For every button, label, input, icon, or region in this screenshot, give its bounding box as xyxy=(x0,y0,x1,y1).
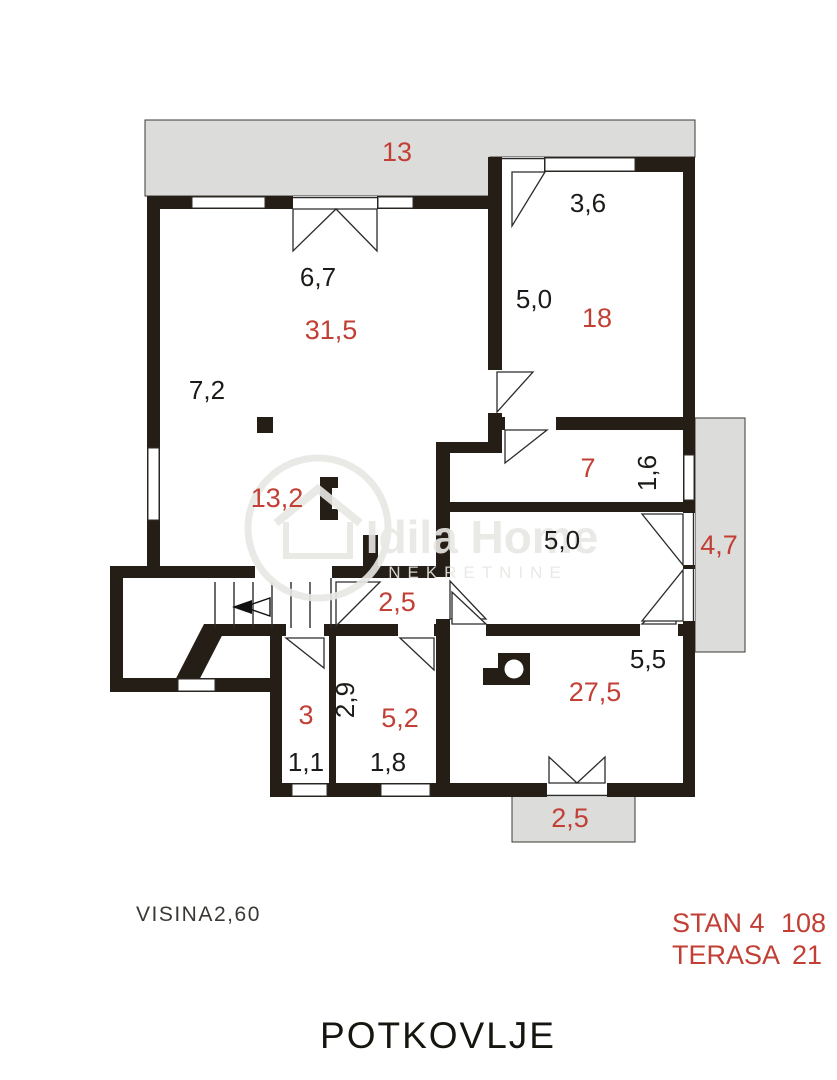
window xyxy=(684,455,694,500)
door-swing xyxy=(497,372,533,412)
window xyxy=(178,679,215,691)
floor-plan-page: Idila Home NEKRETNINE 13 6,7 31,5 7,2 13… xyxy=(0,0,837,1080)
floor-plan-drawing: Idila Home NEKRETNINE 13 6,7 31,5 7,2 13… xyxy=(0,0,837,1080)
room-label: 3,6 xyxy=(570,188,606,218)
door-opening xyxy=(505,417,556,430)
door-swing xyxy=(400,638,434,670)
door-swing xyxy=(505,430,547,463)
wall-segment xyxy=(488,157,502,370)
duct xyxy=(320,509,338,520)
window xyxy=(148,448,159,520)
door-swing xyxy=(512,172,545,226)
door-swing xyxy=(642,514,683,565)
door-opening xyxy=(286,624,324,636)
room-label: 4,7 xyxy=(700,530,738,560)
window xyxy=(545,158,635,171)
room-label: 1,8 xyxy=(370,747,406,777)
room-label: 5,0 xyxy=(516,284,552,314)
room-label: 7 xyxy=(580,453,595,483)
room-label: 13 xyxy=(382,137,412,167)
duct xyxy=(320,477,338,488)
door-swing xyxy=(577,757,605,783)
wall-segment xyxy=(270,624,282,797)
fireplace-notch xyxy=(483,653,498,668)
door-swing xyxy=(286,638,324,668)
room-label: 5,2 xyxy=(381,703,419,733)
summary-row-value: 21 xyxy=(792,940,822,970)
door-swing xyxy=(452,592,486,624)
height-note-label: VISINA xyxy=(136,903,214,926)
door-opening xyxy=(450,624,486,636)
room-label: 2,5 xyxy=(551,803,589,833)
height-note-value: 2,60 xyxy=(214,903,261,926)
fireplace xyxy=(483,653,530,685)
wall-segment xyxy=(270,783,695,797)
room-label: 3 xyxy=(298,700,313,730)
summary-row-value: 108 xyxy=(781,908,826,938)
window xyxy=(292,784,327,796)
room-label: 5,5 xyxy=(630,644,666,674)
room-label: 2,5 xyxy=(378,587,416,617)
door-swing xyxy=(293,209,336,251)
room-label: 6,7 xyxy=(300,262,336,292)
footer-texts: VISINA 2,60 STAN 4 108 TERASA 21 POTKOVL… xyxy=(136,903,826,1056)
room-label: 7,2 xyxy=(189,375,225,405)
page-title: POTKOVLJE xyxy=(320,1015,556,1056)
window xyxy=(381,784,430,796)
wall-segment xyxy=(110,566,255,578)
column-pillar xyxy=(257,417,273,433)
summary-row-label: TERASA xyxy=(672,940,780,970)
door-opening xyxy=(436,577,450,619)
window xyxy=(192,197,265,208)
room-label: 1,6 xyxy=(632,455,662,491)
summary-row-label: STAN 4 xyxy=(672,908,765,938)
door-swing xyxy=(549,757,577,783)
window xyxy=(378,197,413,208)
door-opening xyxy=(640,624,678,636)
room-label: 2,9 xyxy=(330,682,360,718)
watermark-subtitle: NEKRETNINE xyxy=(388,563,568,582)
room-label: 1,1 xyxy=(288,747,324,777)
door-opening xyxy=(398,624,434,636)
door-swing xyxy=(336,209,377,251)
door-opening xyxy=(502,157,544,172)
room-label: 18 xyxy=(582,303,612,333)
room-label: 13,2 xyxy=(251,483,304,513)
room-label: 5,0 xyxy=(544,525,580,555)
wall-segment xyxy=(110,566,123,692)
door-swing xyxy=(642,570,683,621)
wall-segment xyxy=(436,619,450,785)
watermark-house-icon xyxy=(286,522,350,556)
room-label: 31,5 xyxy=(305,315,358,345)
room-label: 27,5 xyxy=(569,677,622,707)
fireplace-flue xyxy=(505,660,524,679)
